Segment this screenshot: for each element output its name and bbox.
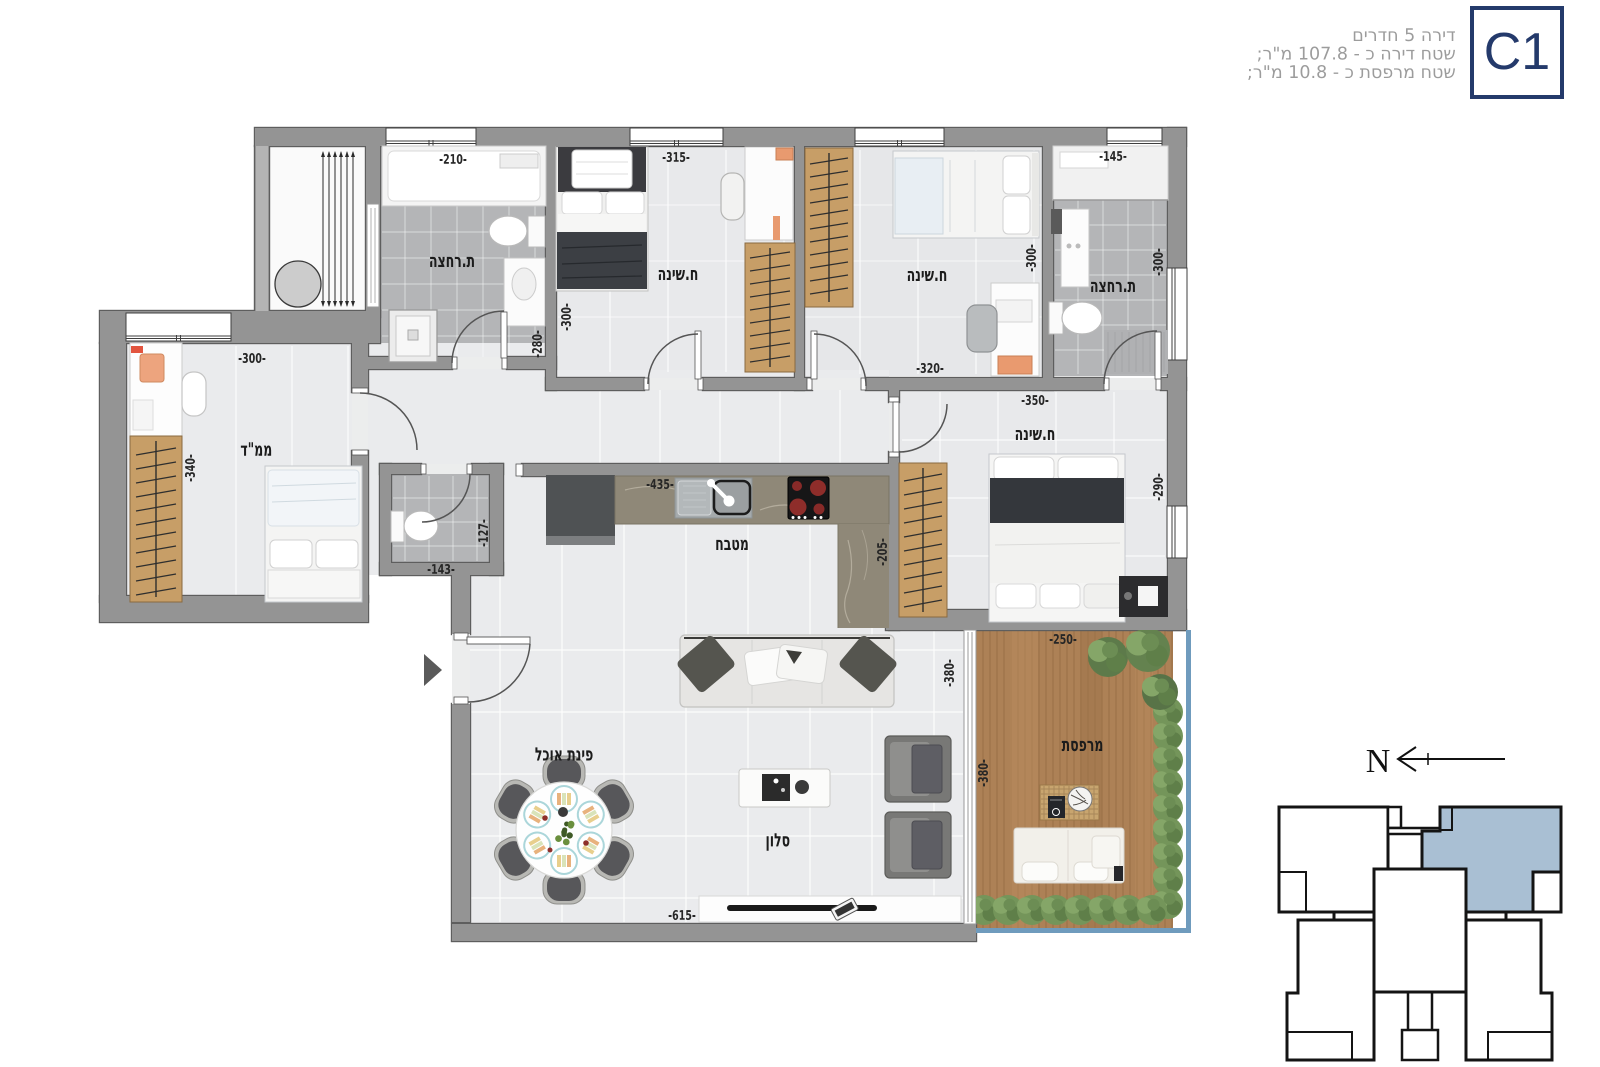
svg-text:C1: C1 bbox=[1484, 23, 1550, 81]
svg-text:N: N bbox=[1366, 743, 1391, 780]
